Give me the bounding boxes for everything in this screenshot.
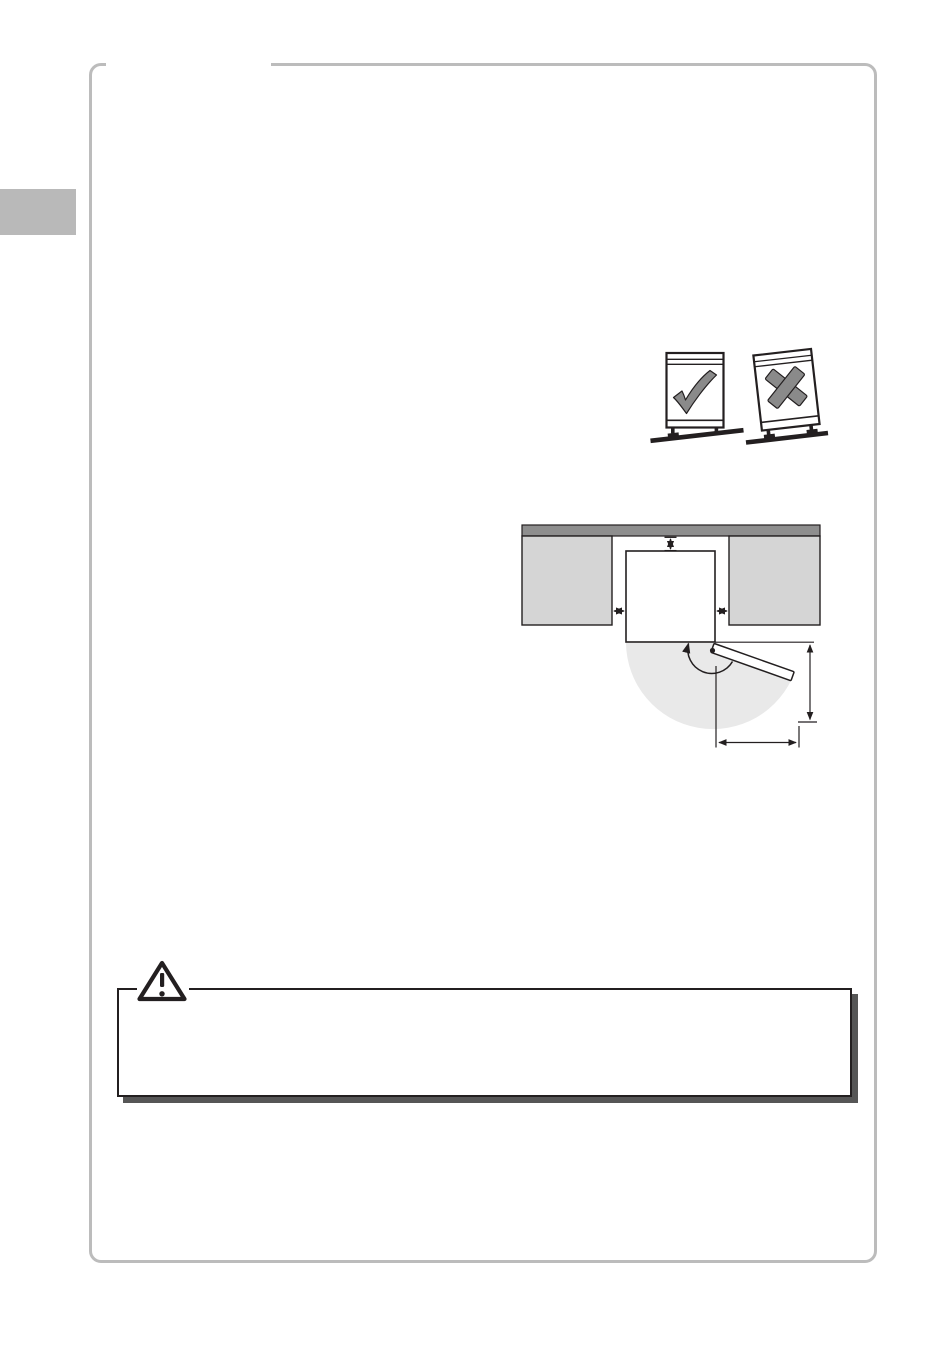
warning-box bbox=[117, 988, 852, 1097]
chapter-tab bbox=[0, 189, 76, 235]
figure-leveling bbox=[645, 338, 840, 450]
warning-triangle-icon bbox=[134, 956, 190, 1006]
exclamation-bar bbox=[160, 973, 164, 987]
exclamation-dot bbox=[159, 991, 164, 996]
dimension-rear-gap bbox=[665, 537, 677, 550]
sloped-floor-line bbox=[746, 433, 828, 443]
door-swing-arc bbox=[626, 643, 795, 729]
manual-page bbox=[0, 0, 950, 1347]
appliance-tilted-bad bbox=[746, 349, 828, 443]
title-gap bbox=[106, 60, 271, 70]
sloped-floor-line bbox=[651, 430, 744, 441]
appliance-top-view bbox=[626, 551, 715, 642]
cabinet-left bbox=[522, 536, 612, 625]
wall-bar bbox=[522, 525, 820, 536]
cabinet-right bbox=[729, 536, 820, 625]
figure-clearance bbox=[512, 518, 832, 758]
appliance-level-ok bbox=[651, 353, 744, 441]
hinge-dot bbox=[710, 648, 715, 653]
